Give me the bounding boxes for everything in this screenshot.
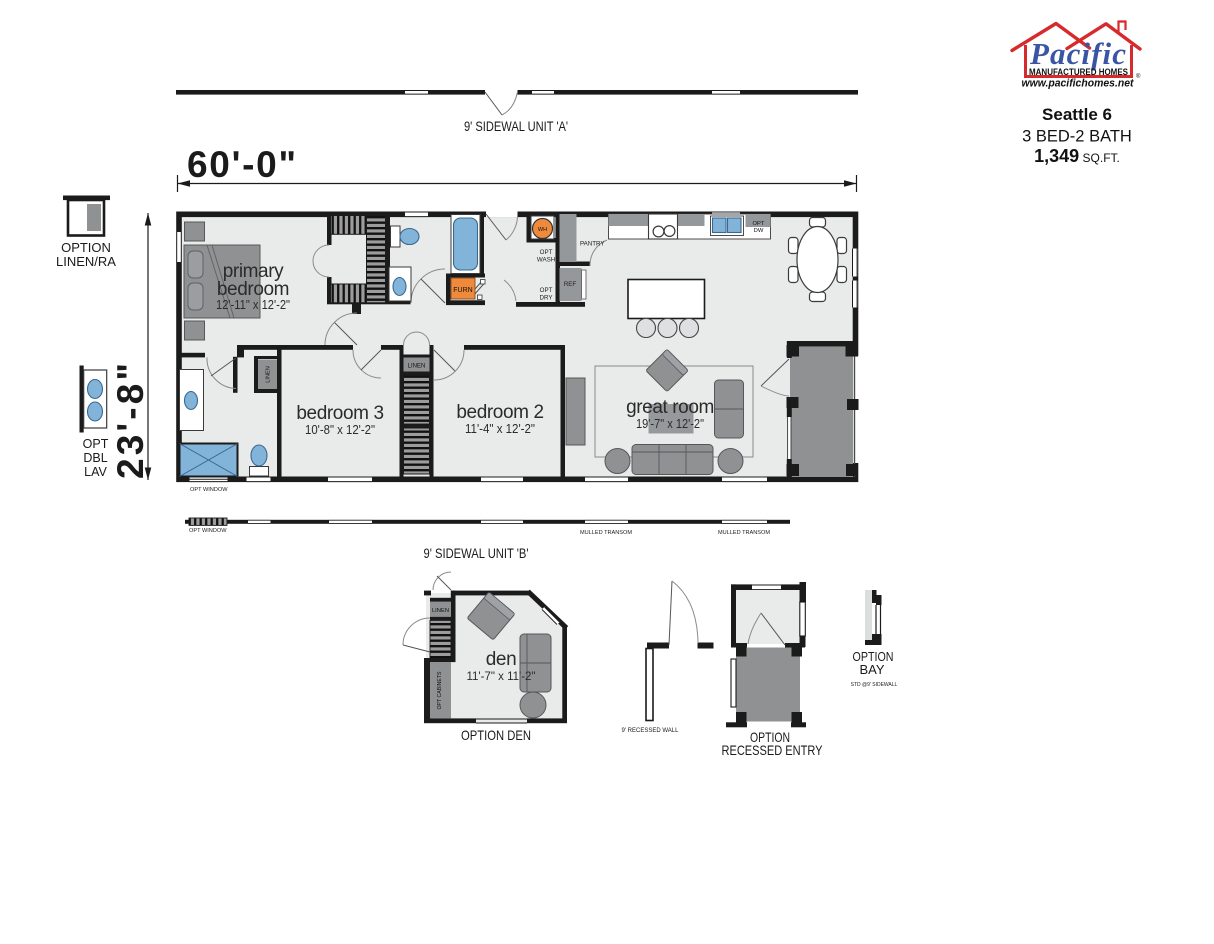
svg-text:60'-0": 60'-0" [187, 144, 296, 185]
svg-text:WH: WH [538, 227, 547, 233]
svg-text:MULLED TRANSOM: MULLED TRANSOM [718, 530, 770, 536]
svg-text:FURN: FURN [453, 287, 472, 294]
svg-text:19'-7" x 12'-2": 19'-7" x 12'-2" [636, 416, 704, 431]
svg-text:www.pacifichomes.net: www.pacifichomes.net [1022, 78, 1135, 90]
svg-text:DBL: DBL [83, 451, 107, 465]
svg-text:bedroom 2: bedroom 2 [456, 402, 543, 423]
svg-text:LINEN: LINEN [266, 366, 272, 382]
svg-text:PANTRY: PANTRY [580, 241, 605, 248]
svg-text:bedroom 3: bedroom 3 [296, 403, 383, 424]
svg-text:OPTION: OPTION [61, 240, 111, 255]
svg-text:OPT: OPT [540, 249, 553, 256]
svg-text:OPTION DEN: OPTION DEN [461, 727, 531, 743]
svg-text:OPT: OPT [753, 221, 765, 227]
svg-text:LINEN/RA: LINEN/RA [56, 254, 116, 269]
svg-text:OPT: OPT [83, 437, 109, 451]
svg-text:9' SIDEWAL UNIT 'A': 9' SIDEWAL UNIT 'A' [464, 119, 568, 134]
svg-text:3 BED-2 BATH: 3 BED-2 BATH [1022, 128, 1132, 146]
svg-text:10'-8" x 12'-2": 10'-8" x 12'-2" [305, 422, 375, 437]
svg-text:OPT WINDOW: OPT WINDOW [189, 528, 227, 534]
svg-text:OPT: OPT [540, 287, 553, 294]
svg-text:LINEN: LINEN [432, 608, 449, 614]
svg-text:DRY: DRY [540, 295, 553, 302]
svg-text:LAV: LAV [84, 465, 107, 479]
svg-text:MULLED TRANSOM: MULLED TRANSOM [580, 530, 632, 536]
svg-text:Pacific: Pacific [1029, 36, 1126, 71]
svg-text:great room: great room [626, 397, 714, 418]
svg-text:BAY: BAY [859, 662, 884, 677]
svg-text:9' SIDEWAL UNIT 'B': 9' SIDEWAL UNIT 'B' [424, 546, 529, 561]
svg-text:Seattle 6: Seattle 6 [1042, 105, 1112, 124]
svg-text:9' RECESSED WALL: 9' RECESSED WALL [622, 728, 680, 734]
svg-text:MANUFACTURED HOMES: MANUFACTURED HOMES [1029, 67, 1128, 78]
svg-text:LINEN: LINEN [408, 364, 426, 370]
svg-text:RECESSED ENTRY: RECESSED ENTRY [722, 742, 824, 758]
svg-text:12'-11" x 12'-2": 12'-11" x 12'-2" [216, 297, 290, 312]
svg-text:OPT WINDOW: OPT WINDOW [190, 487, 228, 493]
svg-text:den: den [486, 649, 517, 670]
svg-text:REF: REF [564, 281, 577, 288]
svg-text:11'-7" x 11'-2": 11'-7" x 11'-2" [467, 671, 536, 683]
svg-text:11'-4" x 12'-2": 11'-4" x 12'-2" [465, 421, 535, 436]
svg-text:STD @9' SIDEWALL: STD @9' SIDEWALL [851, 682, 898, 688]
svg-text:OPT CABINETS: OPT CABINETS [437, 671, 443, 709]
svg-text:WASH: WASH [537, 257, 555, 264]
svg-text:®: ® [1136, 73, 1141, 80]
svg-text:DW: DW [754, 228, 764, 234]
